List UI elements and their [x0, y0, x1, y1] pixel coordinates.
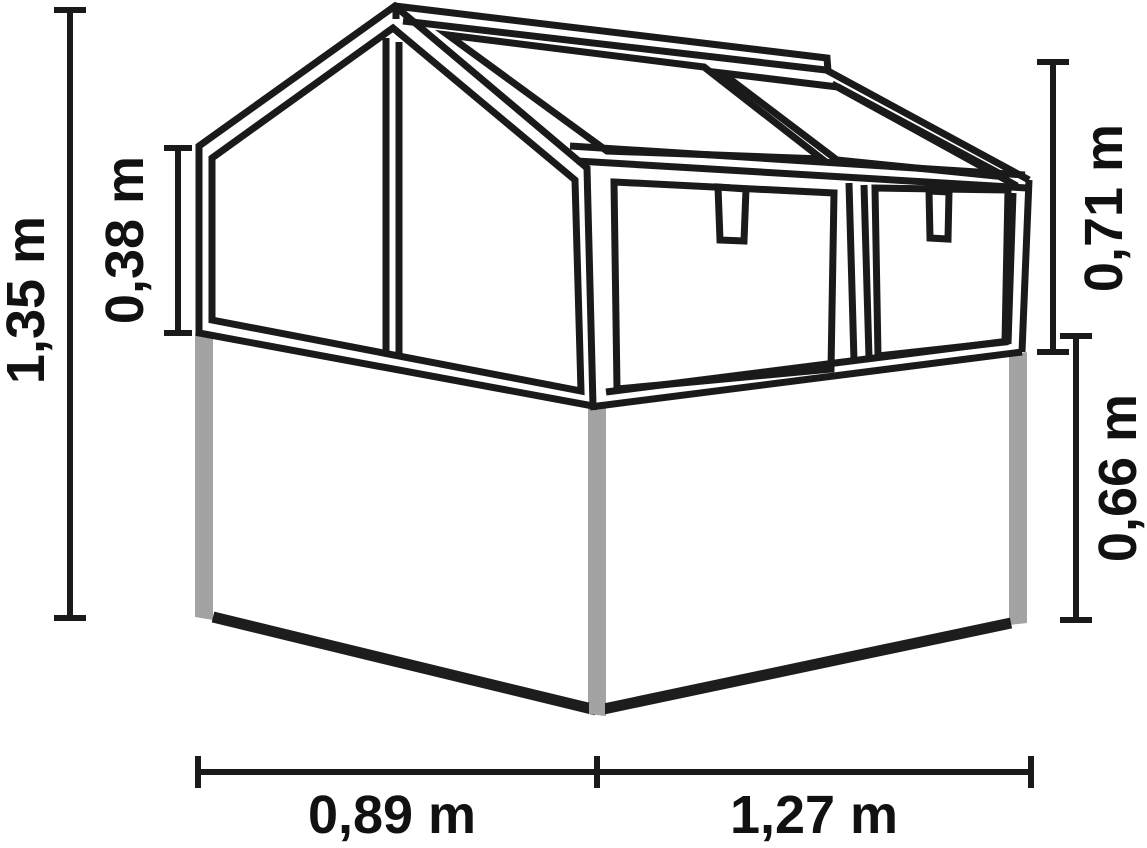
- gable-mullion: [386, 38, 399, 356]
- dim-label-side-depth: 0,89 m: [308, 785, 476, 845]
- dim-label-total-height: 1,35 m: [0, 216, 56, 384]
- base-bottom-edge-left: [213, 617, 596, 710]
- window-latch-right: [929, 191, 949, 239]
- dim-line-glass-front-height: [1037, 62, 1069, 352]
- base-post-right: [1009, 352, 1027, 625]
- dim-label-base-height: 0,66 m: [1088, 394, 1147, 562]
- front-wall-mullion: [849, 183, 869, 361]
- greenhouse-glasshouse: [199, 6, 1029, 407]
- dim-label-front-width: 1,27 m: [730, 785, 898, 845]
- dim-line-glass-side-height: [164, 148, 192, 333]
- base-post-center-tip: [589, 702, 605, 716]
- dim-line-bottom-widths: [198, 756, 1031, 788]
- greenhouse-dimension-diagram: 1,35 m 0,38 m 0,71 m 0,66 m 0,89 m 1,27 …: [0, 0, 1147, 848]
- dim-line-total-height: [54, 10, 86, 618]
- window-latch-left: [718, 187, 746, 241]
- base-post-left: [195, 334, 213, 620]
- dim-label-glass-side-height: 0,38 m: [95, 156, 155, 324]
- dim-label-glass-front-height: 0,71 m: [1074, 124, 1134, 292]
- diagram-canvas: 1,35 m 0,38 m 0,71 m 0,66 m 0,89 m 1,27 …: [0, 0, 1147, 848]
- base-bottom-edge-right: [599, 623, 1011, 710]
- base-post-center: [588, 405, 606, 716]
